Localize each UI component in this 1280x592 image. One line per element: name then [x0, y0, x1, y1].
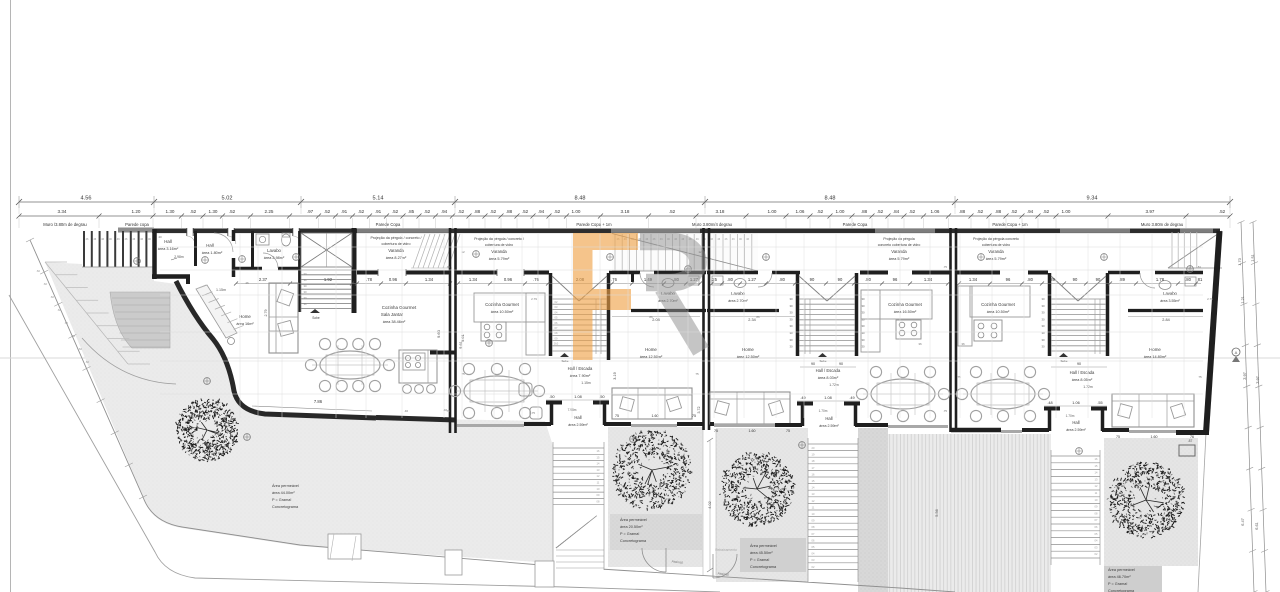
svg-text:Muro /3.80m de degrau: Muro /3.80m de degrau — [43, 222, 87, 227]
svg-text:Varanda: Varanda — [988, 249, 1004, 254]
svg-text:5.02: 5.02 — [222, 196, 233, 202]
svg-text:.80: .80 — [727, 277, 733, 282]
svg-text:Hall: Hall — [574, 415, 581, 420]
svg-text:90: 90 — [810, 277, 815, 282]
svg-text:área 38.46m²: área 38.46m² — [383, 320, 406, 324]
svg-text:área 46.70m²: área 46.70m² — [1108, 575, 1131, 579]
svg-text:1.08: 1.08 — [574, 395, 581, 399]
svg-text:cobertura de vidro: cobertura de vidro — [485, 243, 513, 247]
svg-text:.94: .94 — [1027, 209, 1034, 214]
svg-text:81: 81 — [1198, 277, 1203, 282]
svg-text:área 2.59m²: área 2.59m² — [1066, 428, 1086, 432]
svg-text:2.79: 2.79 — [264, 310, 268, 317]
svg-text:75: 75 — [615, 414, 619, 418]
svg-text:área 12.50m²: área 12.50m² — [737, 355, 760, 359]
svg-text:.52: .52 — [424, 209, 431, 214]
svg-text:Cozinha Gourmet: Cozinha Gourmet — [981, 302, 1015, 307]
svg-text:2.79: 2.79 — [531, 297, 537, 301]
svg-text:30: 30 — [1041, 331, 1045, 335]
svg-text:30: 30 — [789, 304, 793, 308]
svg-text:.80: .80 — [1185, 277, 1191, 282]
svg-text:.78: .78 — [366, 277, 372, 282]
svg-text:Hall: Hall — [1072, 420, 1079, 425]
svg-text:área 5.79m²: área 5.79m² — [986, 257, 1007, 261]
svg-text:Área permeável: Área permeável — [1108, 568, 1135, 572]
svg-text:4.02: 4.02 — [708, 501, 712, 508]
svg-text:área 16.50m²: área 16.50m² — [894, 310, 917, 314]
svg-text:1.00: 1.00 — [768, 209, 777, 214]
svg-text:30: 30 — [789, 311, 793, 315]
svg-text:1.30: 1.30 — [166, 209, 175, 214]
svg-text:2.84: 2.84 — [1162, 318, 1169, 322]
svg-text:2.25: 2.25 — [265, 209, 274, 214]
svg-text:30: 30 — [303, 296, 307, 300]
svg-text:Home: Home — [1149, 347, 1161, 352]
svg-text:12: 12 — [698, 250, 702, 254]
svg-text:4.56: 4.56 — [81, 196, 92, 202]
svg-text:6.61: 6.61 — [1255, 522, 1259, 530]
svg-text:2.34: 2.34 — [748, 318, 755, 322]
svg-text:.88: .88 — [474, 209, 481, 214]
svg-text:1.70m: 1.70m — [1066, 414, 1075, 418]
svg-text:1.60: 1.60 — [1151, 435, 1158, 439]
svg-text:Concretograma: Concretograma — [750, 565, 777, 569]
svg-text:Muro 3.80m de degrau: Muro 3.80m de degrau — [1141, 222, 1184, 227]
svg-text:46: 46 — [245, 281, 249, 285]
svg-text:Concretograma: Concretograma — [620, 539, 647, 543]
svg-text:36: 36 — [961, 342, 965, 346]
svg-text:Parede Copa + 1m: Parede Copa + 1m — [992, 222, 1028, 227]
svg-text:1.00: 1.00 — [572, 209, 581, 214]
svg-text:concreto cobertura de vidro: concreto cobertura de vidro — [878, 243, 921, 247]
svg-text:1.70m: 1.70m — [819, 409, 828, 413]
svg-text:1.92: 1.92 — [324, 277, 333, 282]
svg-text:1.34: 1.34 — [969, 277, 978, 282]
svg-text:3.18: 3.18 — [621, 209, 630, 214]
svg-text:30: 30 — [303, 290, 307, 294]
svg-text:.52: .52 — [458, 209, 465, 214]
svg-text:90: 90 — [811, 362, 815, 366]
svg-text:.52: .52 — [324, 209, 331, 214]
svg-text:30: 30 — [1041, 324, 1045, 328]
svg-text:90: 90 — [839, 362, 843, 366]
svg-text:área 3.16m²: área 3.16m² — [158, 247, 179, 251]
svg-text:.89: .89 — [1049, 277, 1055, 282]
svg-text:P = Grama!: P = Grama! — [750, 558, 769, 562]
svg-text:8.48: 8.48 — [825, 196, 836, 202]
svg-text:.52: .52 — [1219, 209, 1226, 214]
svg-text:área 10.50m²: área 10.50m² — [987, 310, 1010, 314]
svg-text:3.72: 3.72 — [697, 407, 701, 414]
svg-text:30: 30 — [1041, 317, 1045, 321]
svg-text:P = Grama!: P = Grama! — [620, 532, 639, 536]
svg-text:Hall / Escada: Hall / Escada — [1070, 370, 1095, 375]
svg-text:.48: .48 — [1047, 401, 1052, 405]
svg-text:75: 75 — [786, 429, 790, 433]
svg-text:2.37: 2.37 — [259, 277, 268, 282]
svg-text:.60: .60 — [43, 282, 48, 286]
svg-text:Concretograma: Concretograma — [272, 505, 299, 509]
svg-text:30: 30 — [1041, 345, 1045, 349]
svg-text:área 5.79m²: área 5.79m² — [889, 257, 910, 261]
svg-text:76: 76 — [1190, 435, 1194, 439]
svg-text:90: 90 — [1077, 362, 1081, 366]
svg-text:30: 30 — [789, 297, 793, 301]
svg-text:1.06: 1.06 — [796, 209, 805, 214]
svg-text:.60: .60 — [78, 347, 83, 351]
svg-text:Home: Home — [645, 347, 657, 352]
svg-text:Hall: Hall — [164, 239, 172, 244]
svg-text:Cozinha Gourmet: Cozinha Gourmet — [382, 305, 417, 310]
svg-text:Rebaixamento: Rebaixamento — [715, 548, 737, 552]
svg-text:.50: .50 — [549, 395, 554, 399]
svg-text:.52: .52 — [977, 209, 984, 214]
svg-text:30: 30 — [303, 302, 307, 306]
svg-text:30: 30 — [789, 324, 793, 328]
svg-text:.46: .46 — [404, 409, 409, 413]
svg-text:8.48: 8.48 — [575, 196, 586, 202]
svg-text:Área permeável: Área permeável — [620, 518, 647, 522]
svg-text:9.61: 9.61 — [460, 333, 465, 342]
svg-text:36: 36 — [918, 342, 922, 346]
svg-text:30: 30 — [861, 297, 865, 301]
svg-text:Projeção da pérgola / concreto: Projeção da pérgola / concreto / — [371, 236, 422, 240]
svg-text:3.19: 3.19 — [613, 372, 617, 379]
svg-text:Área permeável: Área permeável — [272, 484, 299, 488]
svg-text:área 2.59m²: área 2.59m² — [819, 424, 839, 428]
svg-text:Parede Copa: Parede Copa — [376, 222, 401, 227]
svg-text:30: 30 — [861, 304, 865, 308]
svg-text:90: 90 — [838, 277, 843, 282]
svg-text:1.00: 1.00 — [836, 209, 845, 214]
svg-text:3.34: 3.34 — [58, 209, 67, 214]
svg-text:1.34: 1.34 — [924, 277, 933, 282]
svg-text:6.47: 6.47 — [1241, 518, 1245, 526]
svg-text:Muro 3.80m/4 degrau: Muro 3.80m/4 degrau — [692, 222, 733, 227]
svg-text:área 16m²: área 16m² — [236, 322, 254, 326]
svg-text:A: A — [1235, 350, 1238, 355]
svg-text:9.61: 9.61 — [459, 341, 463, 348]
svg-text:1.70: 1.70 — [1238, 258, 1242, 266]
svg-text:.97: .97 — [307, 209, 314, 214]
svg-text:3.97: 3.97 — [1146, 209, 1155, 214]
svg-text:75: 75 — [1198, 375, 1202, 379]
svg-text:.60: .60 — [71, 334, 76, 338]
svg-text:Parede Copa + 1m: Parede Copa + 1m — [576, 222, 612, 227]
svg-text:30: 30 — [861, 311, 865, 315]
svg-text:Parede copa: Parede copa — [125, 222, 149, 227]
svg-text:3.18: 3.18 — [716, 209, 725, 214]
svg-text:.52: .52 — [909, 209, 916, 214]
svg-text:.60: .60 — [36, 269, 41, 273]
svg-text:.52: .52 — [1043, 209, 1050, 214]
svg-text:.91: .91 — [375, 209, 382, 214]
svg-text:90: 90 — [1073, 277, 1078, 282]
svg-text:.49: .49 — [849, 396, 854, 400]
svg-text:.88: .88 — [995, 209, 1002, 214]
svg-text:Projeção da pérgola / concreto: Projeção da pérgola / concreto / — [474, 237, 524, 241]
svg-text:Parede Copa: Parede Copa — [843, 222, 868, 227]
svg-text:75: 75 — [695, 372, 699, 376]
svg-text:Hall / Escada: Hall / Escada — [816, 368, 841, 373]
svg-text:.52: .52 — [190, 209, 197, 214]
svg-text:2.79: 2.79 — [1207, 297, 1213, 301]
svg-text:30: 30 — [861, 324, 865, 328]
svg-text:1.30: 1.30 — [209, 209, 218, 214]
svg-text:área 14.80m²: área 14.80m² — [1144, 355, 1167, 359]
svg-text:.84: .84 — [893, 209, 900, 214]
svg-text:Projeção da pérgola: Projeção da pérgola — [883, 237, 914, 241]
svg-text:P = Grama!: P = Grama! — [272, 498, 291, 502]
svg-text:P = Grama!: P = Grama! — [1108, 582, 1127, 586]
svg-text:.88: .88 — [861, 209, 868, 214]
svg-text:Hall / Escada: Hall / Escada — [568, 366, 593, 371]
svg-text:1.72m: 1.72m — [829, 383, 839, 387]
svg-text:área 20.50m²: área 20.50m² — [620, 525, 643, 529]
svg-text:Área permeável: Área permeável — [750, 544, 777, 548]
svg-text:1.08: 1.08 — [824, 396, 831, 400]
svg-text:.52: .52 — [1011, 209, 1018, 214]
svg-text:3.97: 3.97 — [1243, 372, 1247, 380]
svg-text:.75: .75 — [531, 411, 536, 415]
svg-text:75: 75 — [1116, 435, 1120, 439]
svg-text:30: 30 — [1041, 338, 1045, 342]
svg-text:cobertura de vidro: cobertura de vidro — [382, 242, 411, 246]
svg-text:7.86: 7.86 — [314, 399, 323, 404]
svg-text:área 1.80m²: área 1.80m² — [202, 251, 223, 255]
svg-text:9.60: 9.60 — [436, 329, 441, 338]
svg-text:1.60: 1.60 — [652, 414, 659, 418]
svg-text:Hall: Hall — [825, 416, 832, 421]
svg-text:.46: .46 — [443, 408, 448, 412]
svg-text:30: 30 — [789, 331, 793, 335]
svg-text:Home: Home — [239, 314, 251, 319]
svg-text:.75: .75 — [943, 265, 948, 269]
svg-text:86: 86 — [649, 315, 653, 319]
svg-text:.75: .75 — [446, 265, 451, 269]
svg-text:30: 30 — [1041, 297, 1045, 301]
svg-text:área 2.70m²: área 2.70m² — [728, 299, 748, 303]
svg-text:.60: .60 — [57, 308, 62, 312]
svg-text:.91: .91 — [341, 209, 348, 214]
svg-text:.52: .52 — [358, 209, 365, 214]
svg-text:.80: .80 — [865, 277, 871, 282]
svg-text:Sobe: Sobe — [312, 316, 320, 320]
svg-text:.52: .52 — [392, 209, 399, 214]
svg-text:86: 86 — [756, 315, 760, 319]
svg-text:30: 30 — [1041, 304, 1045, 308]
svg-text:.88: .88 — [506, 209, 513, 214]
svg-text:1.06: 1.06 — [1072, 401, 1079, 405]
svg-text:área 44.00m²: área 44.00m² — [272, 491, 295, 495]
svg-text:.25: .25 — [711, 277, 717, 282]
svg-text:1.78: 1.78 — [1156, 277, 1165, 282]
svg-text:1.34: 1.34 — [469, 277, 478, 282]
svg-text:1.51: 1.51 — [1251, 254, 1255, 262]
svg-text:30: 30 — [303, 284, 307, 288]
svg-text:90: 90 — [1096, 277, 1101, 282]
svg-text:.49: .49 — [800, 396, 805, 400]
svg-text:1.34: 1.34 — [425, 277, 434, 282]
svg-text:.55: .55 — [1097, 401, 1102, 405]
svg-text:2.08: 2.08 — [652, 318, 659, 322]
svg-text:.52: .52 — [229, 209, 236, 214]
svg-text:.52: .52 — [522, 209, 529, 214]
svg-text:0.96: 0.96 — [389, 277, 398, 282]
svg-text:Lavabo: Lavabo — [267, 248, 281, 253]
svg-text:30: 30 — [789, 338, 793, 342]
svg-text:1.15m: 1.15m — [581, 381, 591, 385]
svg-text:.85: .85 — [408, 209, 415, 214]
svg-text:.75: .75 — [943, 409, 948, 413]
svg-text:.80: .80 — [1027, 277, 1033, 282]
svg-text:1.06: 1.06 — [931, 209, 940, 214]
svg-text:5.56: 5.56 — [935, 509, 939, 516]
svg-text:30: 30 — [861, 331, 865, 335]
svg-text:.60: .60 — [50, 295, 55, 299]
svg-text:área 8.27m²: área 8.27m² — [386, 256, 407, 260]
svg-text:1.60: 1.60 — [749, 429, 756, 433]
svg-text:área 5.79m²: área 5.79m² — [489, 257, 510, 261]
svg-text:área 3.55m²: área 3.55m² — [1160, 299, 1180, 303]
svg-text:Cozinha Gourmet: Cozinha Gourmet — [485, 302, 519, 307]
svg-text:9.34: 9.34 — [1087, 196, 1098, 202]
svg-text:30: 30 — [861, 338, 865, 342]
svg-text:Varanda: Varanda — [891, 249, 907, 254]
svg-text:Varanda: Varanda — [491, 249, 507, 254]
svg-text:.60: .60 — [64, 321, 69, 325]
svg-text:Sala Jantar: Sala Jantar — [381, 312, 404, 317]
svg-text:96: 96 — [1006, 277, 1011, 282]
svg-text:.76: .76 — [611, 277, 617, 282]
svg-text:96: 96 — [893, 277, 898, 282]
svg-text:0.96: 0.96 — [504, 277, 513, 282]
svg-text:.80: .80 — [779, 277, 785, 282]
svg-text:cobertura de vidro: cobertura de vidro — [982, 243, 1010, 247]
svg-text:30: 30 — [1041, 311, 1045, 315]
svg-text:Projeção da pérgola concreto: Projeção da pérgola concreto — [973, 237, 1019, 241]
svg-text:área 7.90m²: área 7.90m² — [570, 374, 591, 378]
svg-text:.76: .76 — [533, 277, 539, 282]
svg-text:30: 30 — [789, 345, 793, 349]
svg-text:30: 30 — [861, 345, 865, 349]
svg-text:1.20: 1.20 — [132, 209, 141, 214]
svg-text:1.21: 1.21 — [1241, 296, 1245, 304]
svg-text:75: 75 — [714, 429, 718, 433]
svg-text:1.15m: 1.15m — [216, 288, 226, 292]
svg-text:.87: .87 — [1188, 439, 1193, 443]
svg-text:30: 30 — [789, 317, 793, 321]
svg-text:área 12.50m²: área 12.50m² — [640, 355, 663, 359]
svg-text:5.14: 5.14 — [373, 196, 384, 202]
svg-text:.52: .52 — [669, 209, 676, 214]
svg-text:.81: .81 — [1197, 265, 1202, 269]
svg-text:1.27: 1.27 — [748, 277, 757, 282]
svg-text:.52: .52 — [490, 209, 497, 214]
svg-text:.52: .52 — [554, 209, 561, 214]
svg-text:.88: .88 — [959, 209, 966, 214]
svg-text:75: 75 — [957, 375, 961, 379]
svg-text:Cozinha Gourmet: Cozinha Gourmet — [888, 302, 922, 307]
svg-text:área 45.50m²: área 45.50m² — [750, 551, 773, 555]
svg-text:010: 010 — [554, 342, 559, 346]
svg-text:30: 30 — [303, 272, 307, 276]
svg-text:.60: .60 — [85, 360, 90, 364]
svg-text:40: 40 — [158, 235, 162, 239]
svg-text:área 2.59m²: área 2.59m² — [568, 423, 588, 427]
svg-text:1.00: 1.00 — [1062, 209, 1071, 214]
svg-text:.94: .94 — [538, 209, 545, 214]
svg-text:.52: .52 — [877, 209, 884, 214]
svg-text:área 8.05m²: área 8.05m² — [1072, 378, 1093, 382]
svg-text:3.97: 3.97 — [1256, 376, 1260, 384]
svg-text:30: 30 — [303, 278, 307, 282]
svg-text:.94: .94 — [441, 209, 448, 214]
svg-text:75: 75 — [692, 414, 696, 418]
svg-text:.52: .52 — [817, 209, 824, 214]
